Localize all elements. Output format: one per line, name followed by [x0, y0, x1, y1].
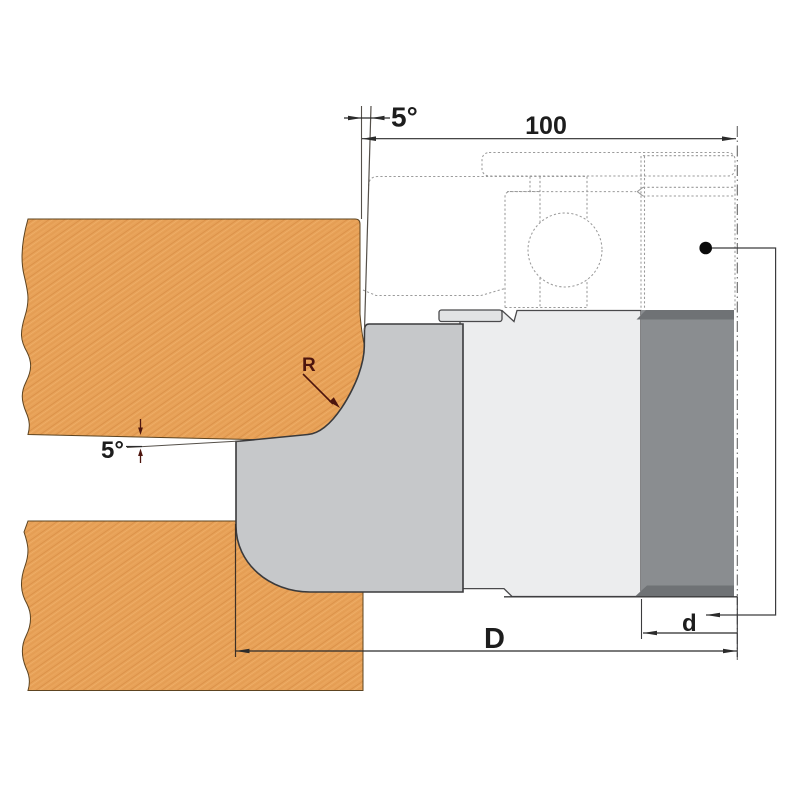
svg-text:5°: 5°: [101, 437, 124, 464]
svg-text:100: 100: [525, 112, 567, 140]
svg-text:D: D: [484, 623, 505, 655]
svg-text:R: R: [302, 355, 316, 376]
svg-text:5°: 5°: [391, 102, 418, 133]
svg-text:d: d: [682, 610, 697, 637]
